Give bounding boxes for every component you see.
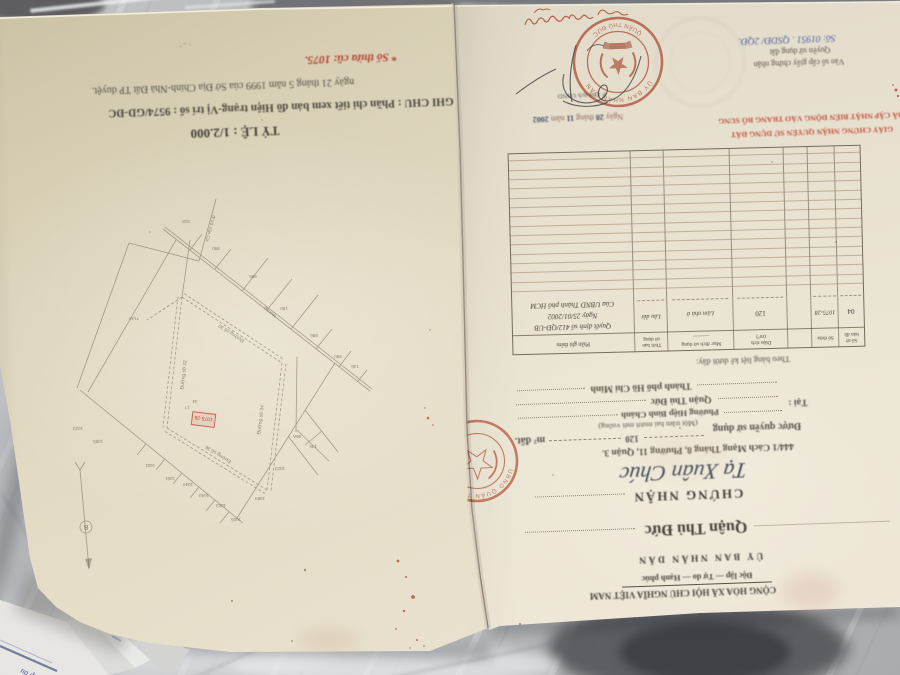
svg-text:UBND QUẬN THỦ ĐỨC: UBND QUẬN THỦ ĐỨC [442,468,514,500]
